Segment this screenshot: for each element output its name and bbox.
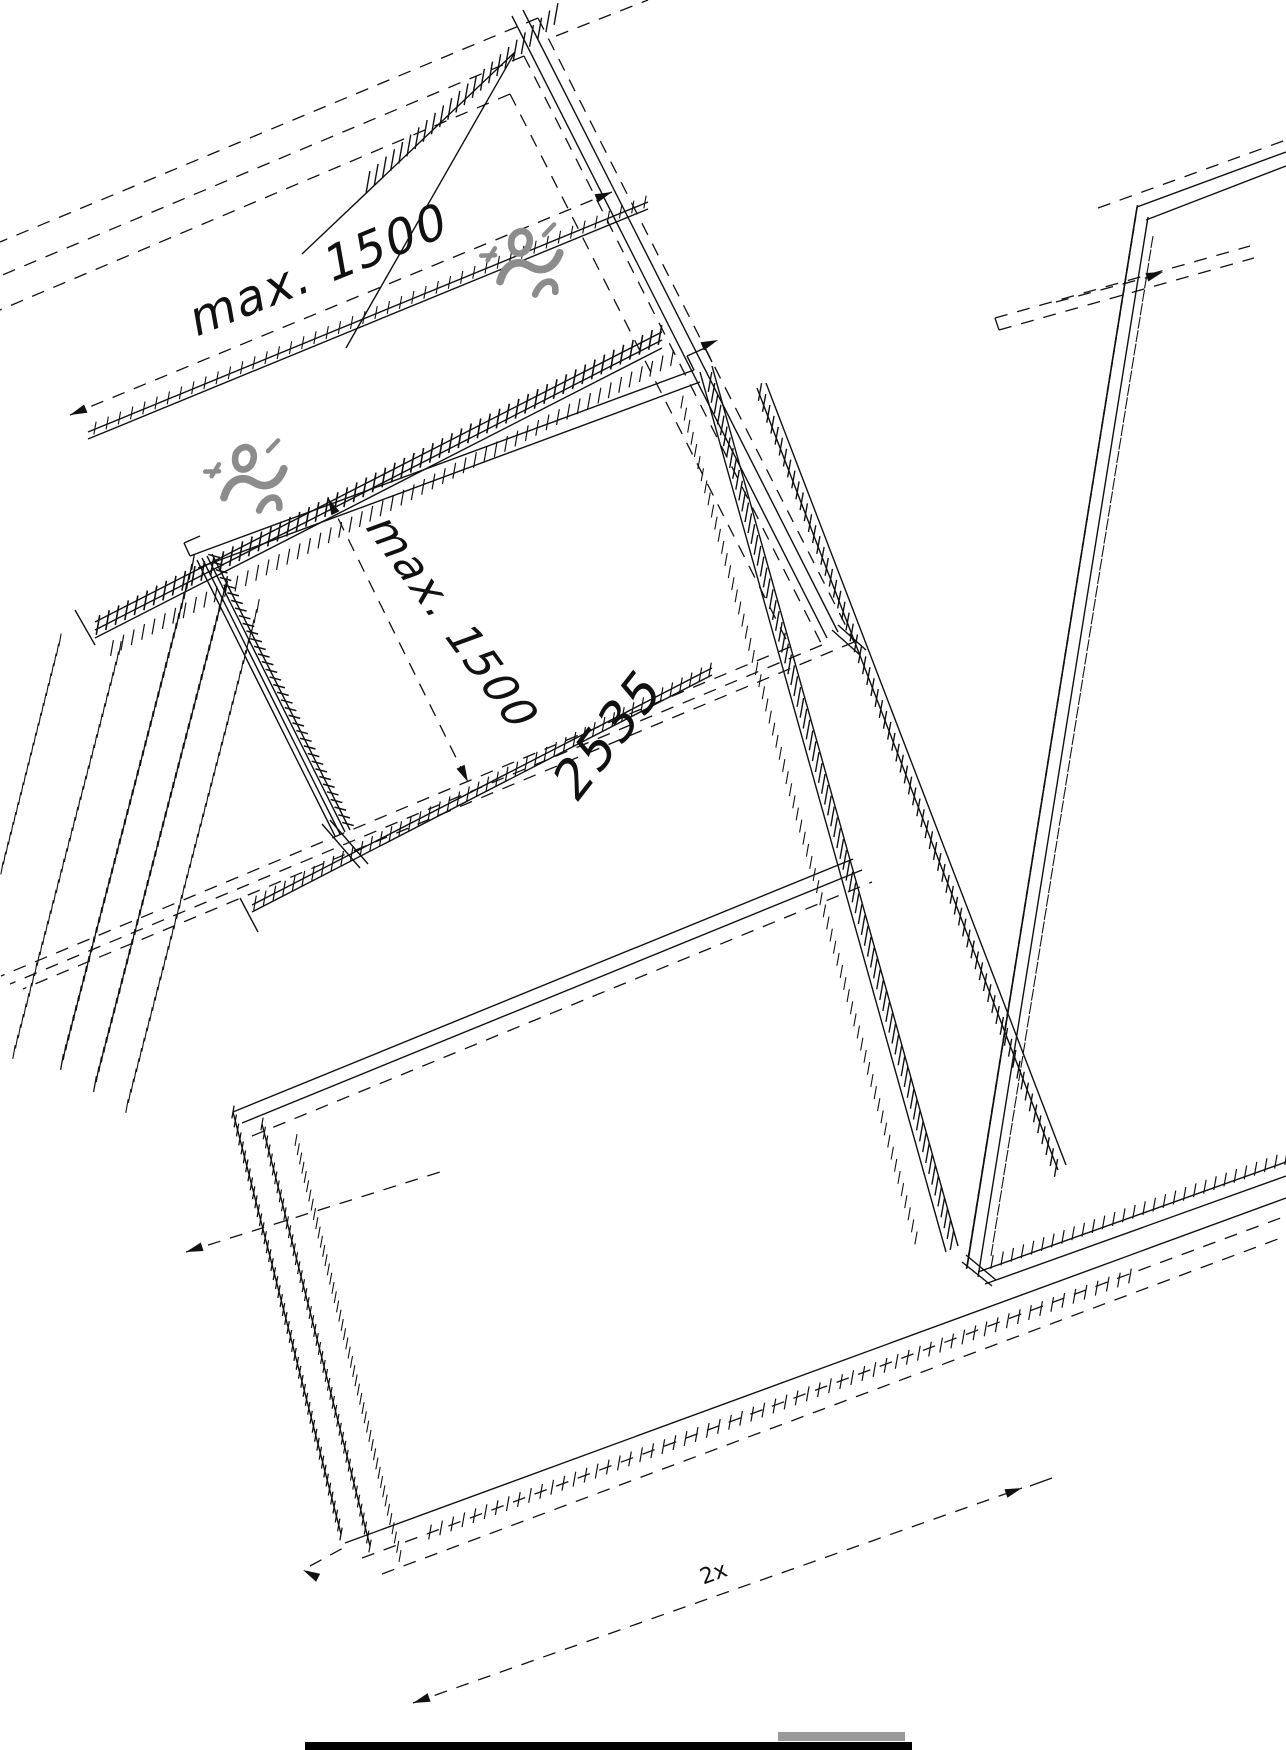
hatch-tick (399, 1550, 401, 1562)
hatch-tick (1040, 1301, 1043, 1316)
hatch-tick (127, 799, 130, 815)
hatch-tick (116, 651, 118, 665)
hatch-tick (644, 196, 646, 209)
hatch-tick (871, 1074, 873, 1087)
hatch-tick (59, 869, 61, 883)
hatch-tick (126, 1099, 128, 1113)
dashed-line (252, 882, 872, 1136)
hatch-tick (920, 1122, 923, 1142)
hatch-tick (105, 693, 107, 707)
hatch-tick (1034, 975, 1036, 987)
hatch-tick (857, 1026, 859, 1039)
hatch-tick (184, 733, 187, 749)
hatch-tick (895, 1035, 898, 1055)
drawing-line (1030, 1478, 1052, 1486)
hatch-tick (102, 703, 104, 717)
hatch-tick (151, 711, 154, 727)
hatch-tick (608, 382, 611, 398)
hatch-tick (796, 808, 798, 821)
hatch-tick (595, 216, 597, 229)
hatch-tick (323, 1245, 325, 1257)
drawing-line (202, 558, 340, 834)
hatch-tick (249, 537, 252, 557)
hatch-tick (145, 880, 148, 896)
hatch-tick (168, 642, 171, 658)
hatch-tick (217, 606, 220, 622)
hatch-tick (332, 1282, 334, 1294)
drawing-line (233, 859, 853, 1112)
hatch-tick (79, 985, 82, 1001)
hatch-tick (112, 1007, 115, 1023)
hatch-tick (650, 361, 653, 377)
hatch-tick (152, 619, 155, 635)
hatch-tick (901, 1056, 904, 1076)
hatch-tick (61, 1054, 64, 1070)
hatch-tick (11, 822, 13, 835)
hatch-tick (161, 966, 163, 980)
dashed-line (510, 94, 790, 647)
hatch-tick (735, 589, 737, 602)
hatch-tick (1049, 881, 1051, 893)
hatch-tick (412, 291, 414, 304)
hatch-tick (1091, 612, 1093, 624)
hatch-tick (1095, 586, 1097, 598)
hatch-tick (847, 989, 849, 1002)
hatch-tick (515, 431, 518, 447)
hatch-tick (190, 854, 192, 868)
solid-lines-layer (75, 10, 1286, 1546)
hatch-tick (785, 644, 788, 664)
hatch-tick (1004, 1163, 1006, 1175)
dimension-arrowhead (301, 1566, 320, 1582)
hatch-tick (829, 1378, 832, 1393)
hatch-tick (209, 783, 211, 797)
hatch-tick (558, 231, 560, 244)
hatch-tick (300, 1153, 302, 1165)
hatch-tick (496, 409, 499, 429)
hatch-tick (422, 479, 425, 495)
hatch-tick (797, 687, 800, 707)
hatch-tick (881, 1110, 883, 1123)
hatch-tick (99, 1057, 102, 1073)
hatch-tick (367, 1421, 369, 1433)
hatch-tick (163, 581, 166, 601)
hatch-tick (18, 1024, 20, 1038)
hatch-tick (97, 917, 100, 933)
hatch-tick (694, 444, 696, 457)
dimension-arrowhead (412, 1693, 431, 1707)
hatch-tick (201, 664, 204, 680)
hatch-tick (1053, 854, 1055, 866)
dimension-arrowhead (595, 188, 614, 203)
hatch-tick (691, 432, 693, 445)
hatch-tick (827, 917, 829, 930)
hatch-tick (477, 419, 480, 439)
hatch-tick (810, 856, 812, 869)
hatch-tick (45, 921, 47, 935)
hatch-tick (525, 394, 528, 414)
hatch-tick (334, 1291, 336, 1303)
hatch-tick (420, 448, 423, 468)
hatch-tick (1142, 290, 1144, 302)
hatch-tick (424, 286, 426, 299)
hatch-tick (127, 949, 130, 965)
hatch-tick (327, 1264, 329, 1276)
hatch-tick (941, 1198, 944, 1218)
quantity-label: 2x (697, 1558, 731, 1591)
hatch-tick (120, 829, 123, 845)
isometric-installation-diagram: max. 1500 max. 1500 2535 2x (0, 0, 1286, 1750)
hatch-tick (850, 1001, 852, 1014)
hatch-tick (534, 389, 537, 409)
drawing-line (700, 372, 946, 1252)
hatch-tick (1110, 491, 1112, 503)
hatch-tick (525, 425, 528, 441)
hatch-tick (889, 1013, 892, 1033)
hatch-tick (1029, 1305, 1032, 1320)
hatch-tick (3, 852, 5, 865)
hatch-tick (962, 1330, 965, 1345)
hatch-tick (148, 870, 151, 886)
hatch-tick (130, 789, 133, 805)
hatch-tick (94, 927, 97, 943)
hatch-tick (757, 546, 760, 566)
hatch-tick (878, 1098, 880, 1111)
hatch-tick (803, 832, 805, 845)
hatch-tick (153, 586, 156, 606)
hatch-tick (1108, 505, 1110, 517)
hatch-tick (316, 1217, 318, 1229)
hatch-tick (104, 887, 107, 903)
hatch-tick (106, 610, 109, 630)
hatch-tick (140, 900, 143, 916)
hatch-tick (24, 772, 26, 785)
hatch-tick (385, 1495, 387, 1507)
hatch-tick (51, 663, 53, 676)
drawing-line (523, 10, 838, 632)
hatch-tick (125, 809, 128, 825)
hatch-tick (67, 838, 69, 852)
hatch-tick (29, 753, 31, 766)
hatch-tick (217, 752, 219, 766)
hatch-tick (94, 734, 96, 748)
hatch-tick (230, 701, 232, 715)
hatch-tick (472, 76, 476, 98)
hatch-tick (37, 952, 39, 966)
hatch-tick (339, 1310, 341, 1322)
hatch-tick (485, 261, 487, 274)
hatch-tick (357, 1384, 359, 1396)
hatch-tick (481, 69, 485, 91)
hatch-tick (171, 926, 173, 940)
hatch-tick (277, 554, 280, 570)
hatch-tick (176, 613, 179, 629)
hatch-tick (1042, 922, 1044, 934)
hatch-tick (1051, 868, 1053, 880)
hatch-tick (108, 683, 110, 697)
hatch-tick (448, 276, 450, 289)
hatch-tick (901, 1183, 903, 1196)
hatch-tick (289, 341, 291, 354)
hatch-tick (751, 524, 754, 544)
hatch-tick (1132, 357, 1134, 369)
hatch-tick (1, 862, 3, 875)
hatch-tick (932, 1165, 935, 1185)
hatch-tick (153, 851, 156, 867)
hatch-tick (905, 1195, 907, 1208)
hatch-tick (174, 623, 177, 639)
drawing-line (242, 870, 862, 1123)
hatch-tick (63, 1044, 66, 1060)
hatch-tick (506, 1496, 509, 1511)
drawing-line (512, 16, 827, 638)
hatch-tick (383, 1485, 385, 1497)
drawing-line (1146, 166, 1286, 220)
hatch-tick (806, 844, 808, 857)
hatch-tick (895, 1354, 898, 1369)
hatch-tick (430, 443, 433, 463)
hatch-tick (371, 1439, 373, 1451)
hatch-tick (363, 478, 366, 498)
hatch-tick (411, 453, 414, 473)
dimension-arrowhead (1004, 1484, 1023, 1498)
hatch-tick (551, 1480, 554, 1495)
hatch-tick (1081, 680, 1083, 692)
hatch-tick (770, 589, 773, 609)
hatch-tick (54, 890, 56, 904)
hatch-tick (94, 422, 96, 435)
hatch-tick (153, 701, 156, 717)
hatch-tick (62, 859, 64, 873)
hatch-tick (888, 1135, 890, 1148)
hatch-tick (209, 635, 212, 651)
hatch-tick (554, 3, 558, 25)
hatch-tick (341, 1319, 343, 1331)
hatch-tick (185, 875, 187, 889)
hatch-tick (296, 512, 299, 532)
hatch-tick (158, 831, 161, 847)
hatch-tick (112, 858, 115, 874)
hatch-tick (910, 1089, 913, 1109)
hatch-tick (817, 880, 819, 893)
hatch-tick (991, 1244, 993, 1256)
hatch-tick (29, 983, 31, 997)
hatch-tick (13, 812, 15, 825)
dashed-line (362, 1216, 1286, 1558)
hatch-tick (351, 316, 353, 329)
hatch-tick (619, 206, 621, 219)
hatch-tick (546, 415, 549, 431)
hatch-tick (374, 1448, 376, 1460)
hatch-tick (993, 1231, 995, 1243)
hatch-tick (1063, 787, 1065, 799)
hatch-tick (506, 404, 509, 424)
hatch-tick (158, 682, 161, 698)
hatch-tick (484, 1504, 487, 1519)
hatch-tick (117, 988, 120, 1004)
hatch-tick (618, 1456, 621, 1471)
hatch-tick (874, 959, 877, 979)
drawing-line (212, 554, 350, 830)
hatch-tick (158, 977, 160, 991)
hatch-tick (843, 850, 846, 870)
dashed-line (538, 18, 854, 642)
hatch-tick (828, 796, 831, 816)
hatch-tick (1106, 518, 1108, 530)
hatch-tick (688, 420, 690, 433)
hatch-tick (973, 1326, 976, 1341)
hatch-tick (809, 731, 812, 751)
hatch-tick (207, 645, 210, 661)
hatch-tick (873, 1362, 876, 1377)
hatch-tick (497, 256, 499, 269)
hatch-tick (253, 356, 255, 369)
hatch-tick (1027, 1016, 1029, 1028)
hatch-tick (684, 408, 686, 421)
dimension-arrowhead (701, 336, 720, 351)
hatch-tick (16, 1035, 18, 1049)
hatch-tick (166, 652, 169, 668)
hatch-tick (1118, 1273, 1121, 1288)
hatch-tick (117, 838, 120, 854)
hatch-tick (715, 517, 717, 530)
hatch-tick (134, 595, 137, 615)
hatch-tick (497, 54, 501, 76)
drawing-line (207, 556, 345, 832)
hatch-tick (705, 480, 707, 493)
hatch-tick (1138, 317, 1140, 329)
hatch-tick (148, 721, 151, 737)
hatch-tick (122, 819, 125, 835)
hatch-tick (179, 895, 181, 909)
hatch-tick (277, 346, 279, 359)
hatch-tick (181, 743, 184, 759)
hatch-tick (763, 568, 766, 588)
hatch-tick (671, 350, 674, 366)
hatch-tick (24, 1004, 26, 1018)
hatch-tick (167, 391, 169, 404)
hatch-tick (115, 605, 118, 625)
hatch-tick (1083, 666, 1085, 678)
hatch-tick (144, 1028, 146, 1042)
hatch-tick (304, 1171, 306, 1183)
hatch-tick (935, 1176, 938, 1196)
hatch-tick (78, 796, 80, 810)
drawing-line (198, 382, 700, 568)
clamp-icon (202, 435, 300, 527)
hatch-tick (225, 722, 227, 736)
hatch-tick (456, 91, 460, 113)
drawing-line (985, 1176, 1286, 1284)
hatch-tick (515, 399, 518, 419)
hatch-tick (360, 1393, 362, 1405)
hatch-tick (140, 750, 143, 766)
hatch-tick (203, 803, 205, 817)
hatch-tick (128, 1089, 130, 1103)
hatch-tick (302, 336, 304, 349)
hatch-tick (819, 763, 822, 783)
dashed-line (70, 192, 612, 415)
hatch-tick (766, 579, 769, 599)
dashed-line (186, 1172, 440, 1252)
dimension-arrowhead (185, 1242, 204, 1256)
drawing-line (184, 536, 200, 543)
hatch-tick (1119, 438, 1121, 450)
hatch-tick (94, 1076, 97, 1092)
hatch-tick (789, 783, 791, 796)
hatch-tick (81, 786, 83, 800)
hatch-tick (313, 1208, 315, 1220)
bottom-gray-strip (778, 1732, 905, 1741)
hatch-tick (864, 926, 867, 946)
hatch-tick (338, 321, 340, 334)
hatch-tick (745, 626, 747, 639)
hatch-tick (378, 1467, 380, 1479)
hatch-tick (711, 505, 713, 518)
hatch-tick (1051, 1297, 1054, 1312)
hatch-tick (629, 372, 632, 388)
hatch-tick (227, 711, 229, 725)
hatch-tick (145, 731, 148, 747)
drawing-line (766, 383, 1066, 1165)
hatch-tick (725, 553, 727, 566)
hatch-tick (131, 407, 133, 420)
hatch-tick (884, 1358, 887, 1373)
hatch-tick (380, 500, 383, 516)
hatch-tick (349, 517, 352, 533)
hatch-tick (161, 672, 164, 688)
hatch-tick (220, 551, 223, 571)
hatch-tick (76, 995, 79, 1011)
dashed-line (556, 0, 648, 36)
hatch-tick (473, 266, 475, 279)
hatch-tick (212, 625, 215, 641)
hatch-tick (1113, 478, 1115, 490)
panel-length-label: 2535 (544, 654, 673, 815)
hatch-tick (387, 301, 389, 314)
hatch-tick (257, 599, 259, 613)
hatch-tick (1078, 693, 1080, 705)
hatch-tick (311, 1199, 313, 1211)
hatch-tick (846, 861, 849, 881)
hatch-tick (68, 1025, 71, 1041)
hatch-tick (812, 741, 815, 761)
hatch-tick (803, 709, 806, 729)
hatch-tick (219, 742, 221, 756)
hatch-tick (861, 915, 864, 935)
hatch-tick (461, 271, 463, 284)
hatch-tick (1021, 1056, 1023, 1068)
hatch-tick (806, 720, 809, 740)
hatch-tick (825, 785, 828, 805)
hatch-tick (739, 602, 741, 615)
hatch-tick (75, 807, 77, 821)
hatch-tick (135, 770, 138, 786)
hatch-tick (463, 458, 466, 474)
hatch-tick (742, 614, 744, 627)
hatch-tick (786, 771, 788, 784)
hatch-tick (302, 1162, 304, 1174)
hatch-tick (73, 1005, 76, 1021)
hatch-tick (1074, 720, 1076, 732)
hatch-tick (736, 470, 739, 490)
drawing-line (190, 370, 694, 556)
technical-drawing-page: max. 1500 max. 1500 2535 2x (0, 0, 1286, 1750)
hatch-tick (309, 1190, 311, 1202)
hatch-tick (1068, 760, 1070, 772)
hatch-tick (89, 755, 91, 769)
hatch-tick (769, 711, 771, 724)
